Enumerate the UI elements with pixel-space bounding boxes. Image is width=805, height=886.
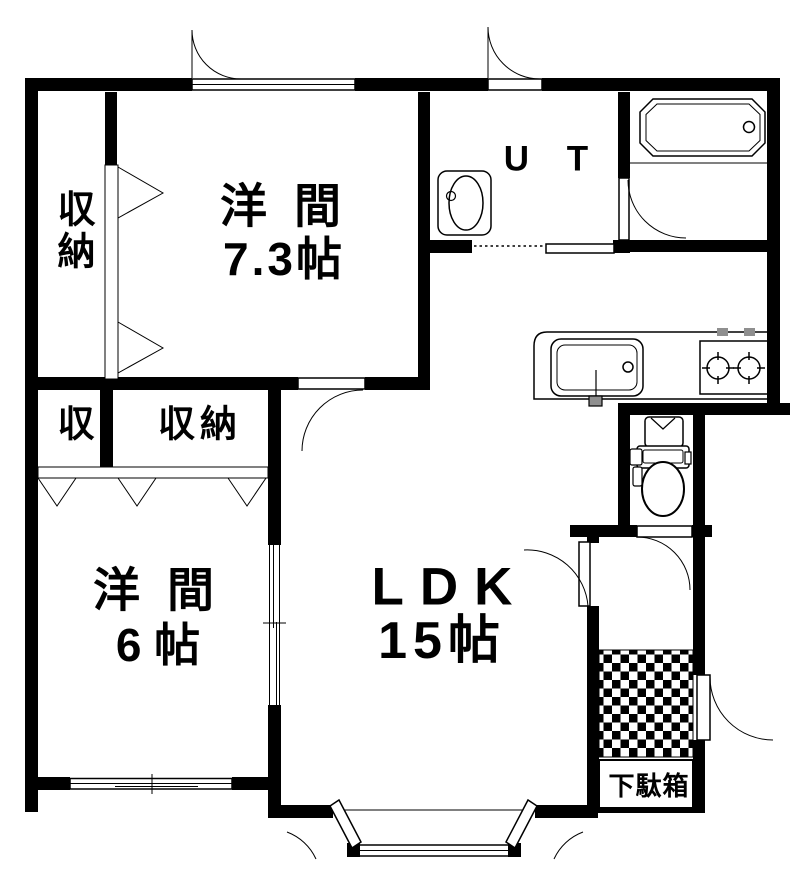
label-ldk-size: 15帖: [378, 615, 506, 667]
label-western-room-73-size: 7.3帖: [223, 236, 345, 282]
room-labels: 洋 間 7.3帖 U T 収納 収 収納 洋 間 6 帖 LDK 15帖 下駄箱: [0, 0, 805, 886]
floor-plan: 洋 間 7.3帖 U T 収納 収 収納 洋 間 6 帖 LDK 15帖 下駄箱: [0, 0, 805, 886]
label-ldk-name: LDK: [364, 561, 529, 614]
label-closet-small: 収: [58, 406, 95, 443]
label-shoe-cabinet: 下駄箱: [608, 773, 689, 799]
label-western-room-73-name: 洋 間: [220, 183, 348, 230]
label-closet-wide: 収納: [158, 406, 242, 443]
label-western-room-6-name: 洋 間: [93, 567, 221, 614]
label-utility-room: U T: [490, 142, 602, 177]
label-western-room-6-size: 6 帖: [116, 622, 200, 668]
label-closet-vertical: 収納: [53, 189, 91, 273]
